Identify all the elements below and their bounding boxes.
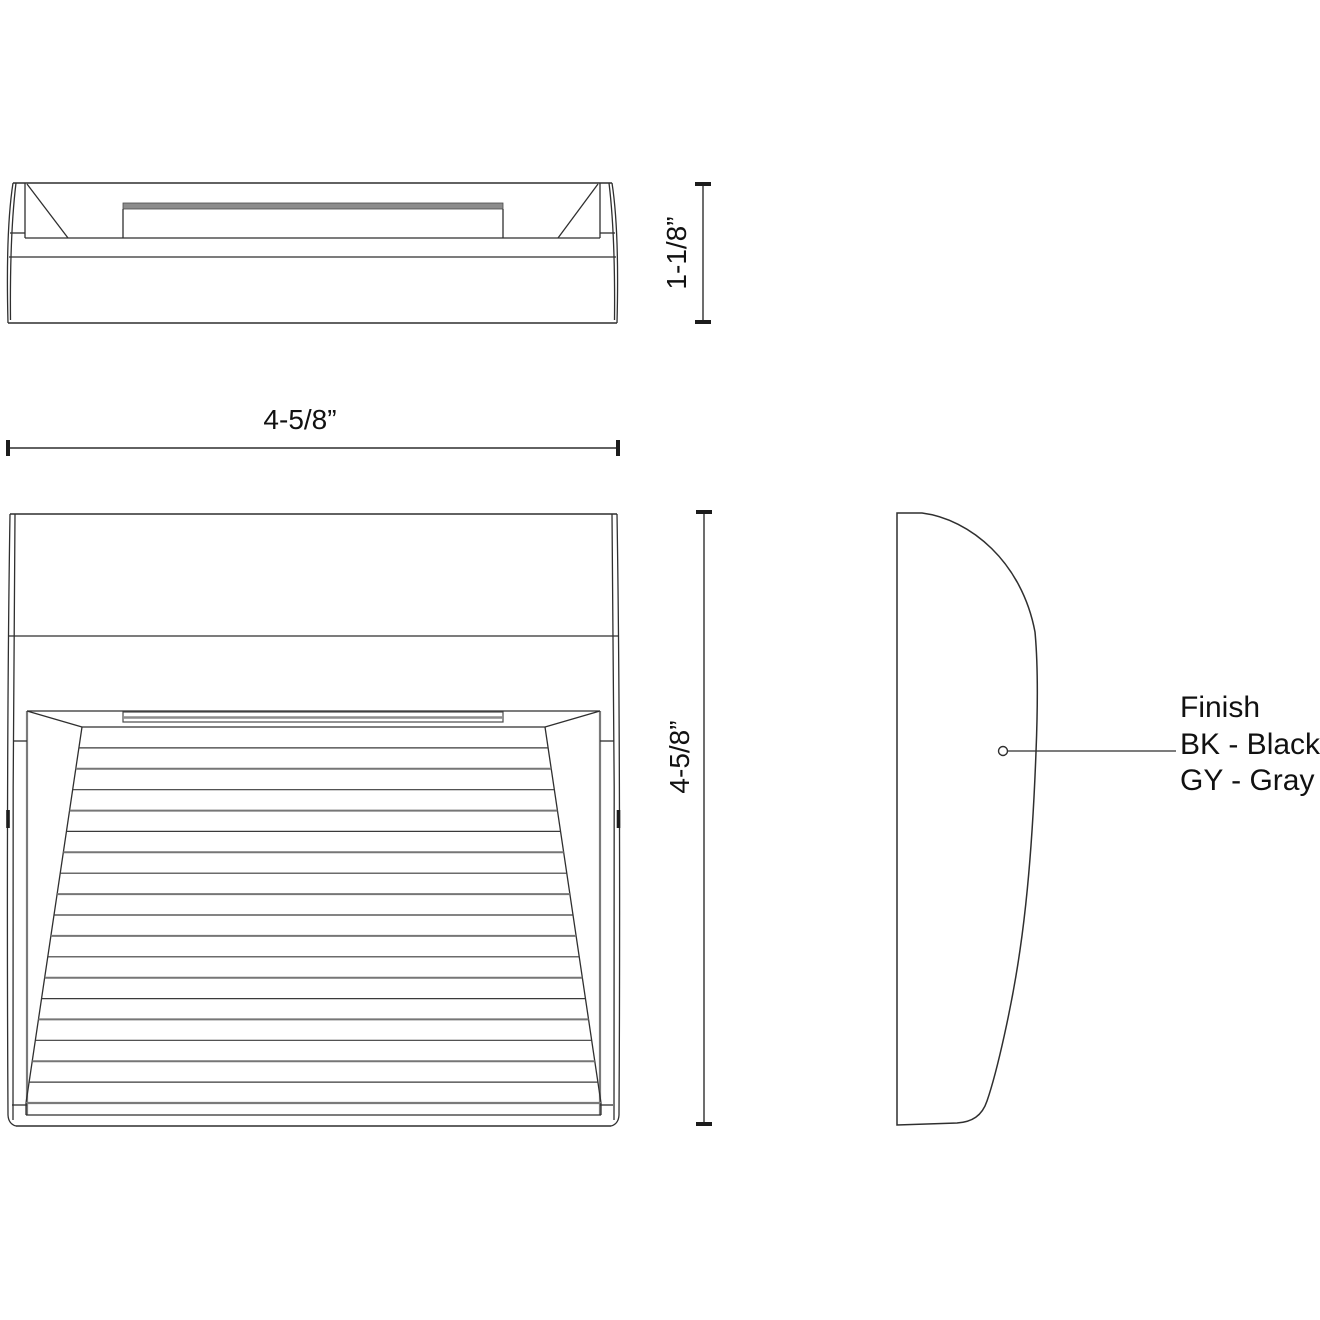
finish-title: Finish bbox=[1180, 691, 1260, 724]
top-view-left-inner-edge bbox=[10, 183, 16, 320]
technical-drawing: 1-1/8” 4-5/8” bbox=[0, 0, 1320, 1320]
height-dimension-text: 4-5/8” bbox=[664, 720, 695, 793]
height-dimension: 4-5/8” bbox=[664, 512, 712, 1124]
side-view bbox=[897, 513, 1176, 1125]
top-view bbox=[7, 183, 617, 323]
depth-dimension-text: 1-1/8” bbox=[661, 216, 692, 289]
finish-option-gray: GY - Gray bbox=[1180, 764, 1314, 797]
front-right-inner-edge bbox=[612, 514, 614, 1120]
top-view-right-corner-diagonal bbox=[558, 184, 598, 238]
led-lens-bar-top bbox=[123, 203, 503, 209]
front-left-inner-edge bbox=[13, 514, 15, 1120]
depth-dimension: 1-1/8” bbox=[661, 184, 711, 322]
finish-option-black: BK - Black bbox=[1180, 728, 1320, 761]
louver-lines bbox=[29, 748, 598, 1082]
side-profile bbox=[897, 513, 1037, 1125]
top-view-left-corner-diagonal bbox=[27, 184, 68, 238]
recess-right-corner-diagonal bbox=[545, 711, 600, 727]
width-dimension-text: 4-5/8” bbox=[263, 404, 336, 435]
finish-legend: Finish BK - Black GY - Gray bbox=[1180, 691, 1320, 797]
front-view bbox=[7, 514, 619, 1126]
louver-trapezoid bbox=[26, 727, 601, 1115]
width-dimension: 4-5/8” bbox=[8, 404, 618, 456]
top-view-right-inner-edge bbox=[609, 183, 615, 320]
recess-left-corner-diagonal bbox=[27, 711, 82, 727]
finish-leader-dot bbox=[999, 747, 1008, 756]
